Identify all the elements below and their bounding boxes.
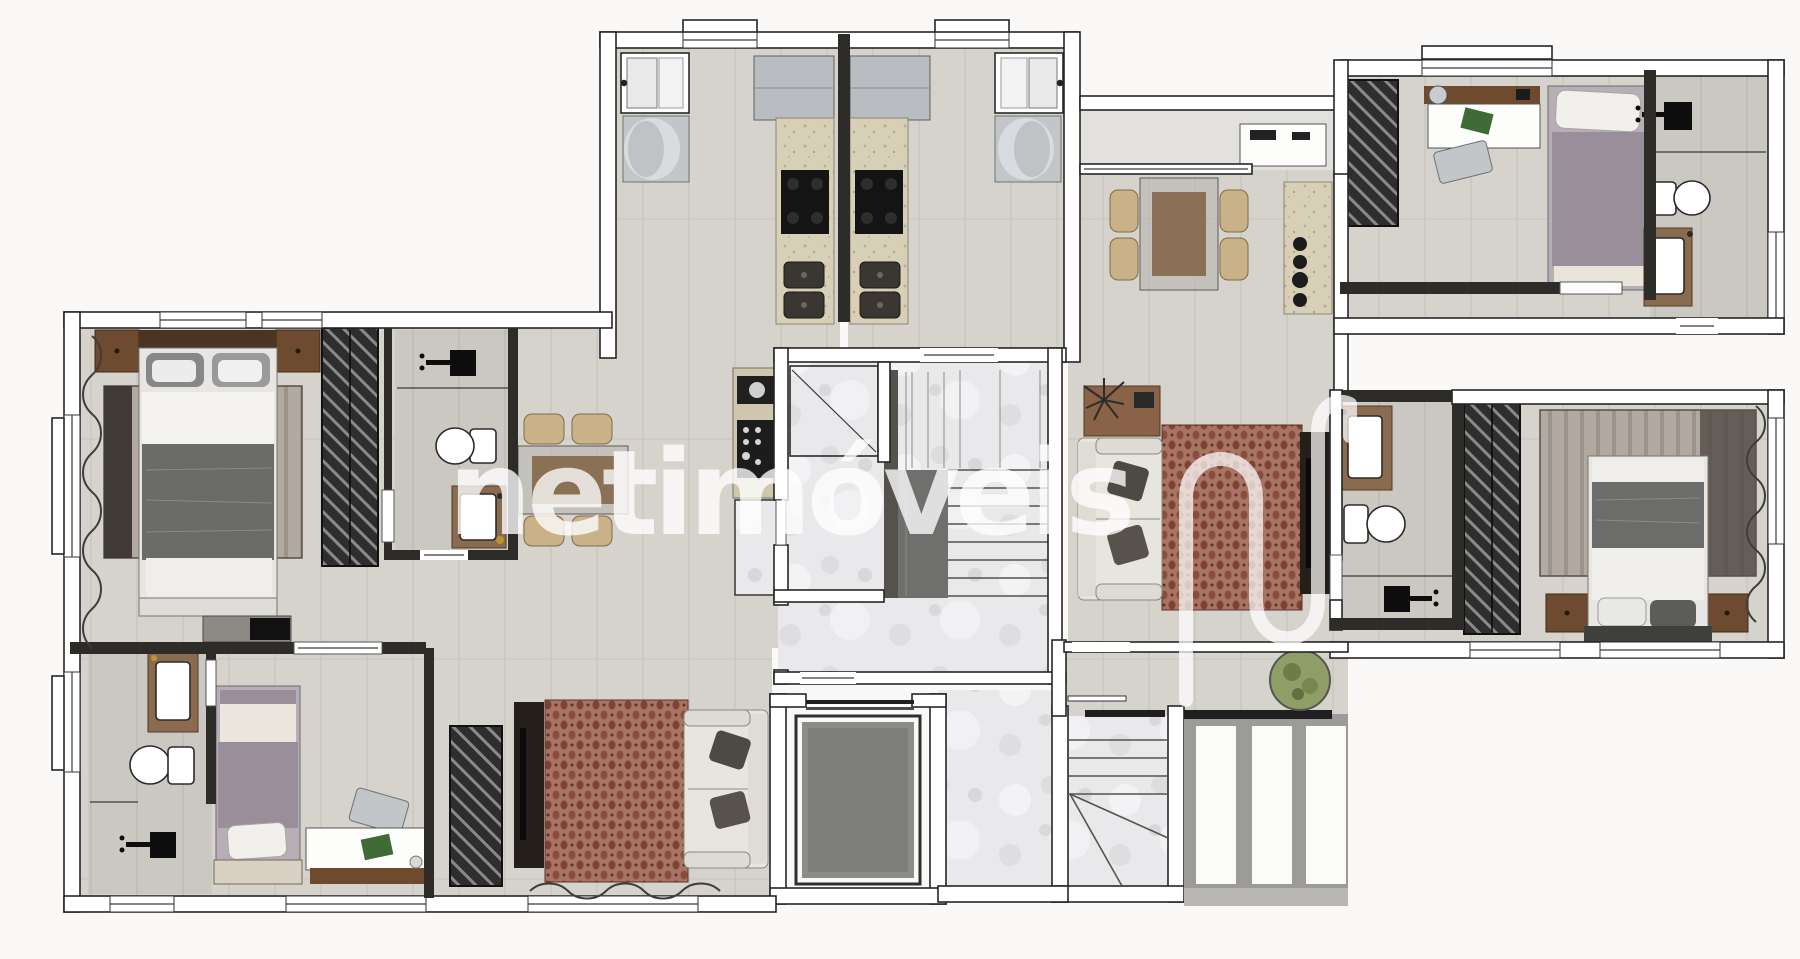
faucet-icon xyxy=(1057,80,1063,86)
washer-left xyxy=(623,116,689,182)
blanket xyxy=(142,444,274,560)
tv-console-left xyxy=(514,702,544,868)
door xyxy=(1560,282,1622,294)
pillow xyxy=(1650,600,1696,628)
slat-area xyxy=(1184,710,1348,906)
window-sill xyxy=(52,676,64,770)
wall-bath-d-left xyxy=(1330,390,1342,560)
window xyxy=(64,672,80,772)
cooktop-left xyxy=(781,170,829,234)
door xyxy=(920,348,998,362)
window xyxy=(1422,60,1552,76)
wall-bath-d-bottom xyxy=(1330,618,1460,630)
window xyxy=(935,32,1009,48)
floor-plan-canvas: netimóveis xyxy=(0,0,1800,959)
bed4-headboard xyxy=(1584,626,1712,642)
potted-plant xyxy=(1270,650,1330,710)
door xyxy=(800,672,856,684)
window xyxy=(64,415,80,557)
wall-topright-left xyxy=(1334,60,1348,178)
wall-kitchen-divider xyxy=(838,34,850,322)
window xyxy=(1768,418,1784,544)
elevator-hall-floor xyxy=(938,690,1062,890)
window-sill xyxy=(1422,46,1552,59)
sink-vanity xyxy=(148,652,198,732)
wall-bedroom4-top xyxy=(1452,390,1784,404)
lower-stairs-floor xyxy=(1068,716,1172,888)
wall-leftunit-top xyxy=(64,312,612,328)
door xyxy=(382,490,394,542)
blanket xyxy=(1552,132,1646,266)
dining-chair xyxy=(1220,238,1248,280)
elevator-door xyxy=(806,700,914,704)
window xyxy=(262,312,322,328)
wall-kitchen-left xyxy=(600,32,616,358)
watermark-text: netimóveis xyxy=(448,434,1208,552)
table-runner xyxy=(1152,192,1206,276)
sofa-left xyxy=(684,710,768,868)
window xyxy=(528,896,698,912)
wall-corridor-top xyxy=(1080,96,1348,110)
blanket xyxy=(1592,482,1704,548)
wardrobe-bedroom2 xyxy=(450,726,502,886)
wall-bedroom3-bottom xyxy=(1340,282,1560,294)
toilet xyxy=(1344,505,1405,543)
blanket xyxy=(218,742,298,828)
tv-icon xyxy=(520,728,526,840)
faucet-icon xyxy=(621,80,627,86)
pillow xyxy=(227,822,287,860)
window xyxy=(286,896,426,912)
wall-leftunit-left xyxy=(64,312,80,912)
fold-band xyxy=(220,704,296,742)
living-left-rug xyxy=(545,700,688,882)
double-bed-4 xyxy=(1584,456,1712,642)
window xyxy=(683,32,757,48)
toilet xyxy=(1652,181,1710,215)
wall-bath-d-divider xyxy=(1452,390,1464,630)
wall-stair-lower xyxy=(774,590,884,602)
door xyxy=(294,642,382,654)
window xyxy=(160,312,246,328)
dining-chair xyxy=(1220,190,1248,232)
single-bed-2 xyxy=(214,686,302,884)
wall-bath-c-divider xyxy=(1644,70,1656,300)
pillow xyxy=(1555,90,1641,132)
dining-chair xyxy=(1110,190,1138,232)
washer-right xyxy=(995,116,1061,182)
wall-kitchen-right xyxy=(1064,32,1080,362)
slat-area-rail xyxy=(1184,710,1332,719)
door-leaf xyxy=(1068,696,1126,701)
window xyxy=(1470,642,1560,658)
window xyxy=(1600,642,1720,658)
toilet xyxy=(130,746,194,784)
window-sill xyxy=(52,418,64,554)
wall-topright-top xyxy=(1340,60,1784,76)
single-bed-3 xyxy=(1548,86,1648,290)
elevator xyxy=(770,694,946,904)
wall-bedroom2-right xyxy=(424,648,434,898)
wardrobe-bedroom3 xyxy=(1342,80,1398,226)
window-sill xyxy=(683,20,757,32)
window xyxy=(1768,232,1784,320)
window-sill xyxy=(935,20,1009,32)
tv-icon xyxy=(250,618,290,640)
double-bed-1 xyxy=(139,348,277,616)
door xyxy=(1330,555,1342,605)
door xyxy=(1676,318,1718,334)
tv-console-bedroom1 xyxy=(203,616,291,642)
corridor-console xyxy=(1240,124,1326,166)
cooktop-right xyxy=(855,170,903,234)
dining-chair xyxy=(1110,238,1138,280)
kitchenette-counter-right-unit xyxy=(1284,182,1332,314)
window xyxy=(110,896,174,912)
bed1-headboard xyxy=(139,330,276,348)
pillow xyxy=(1598,598,1646,626)
bed2-headboard xyxy=(214,860,302,884)
door xyxy=(206,660,216,706)
lower-stairs-door xyxy=(1085,710,1165,717)
